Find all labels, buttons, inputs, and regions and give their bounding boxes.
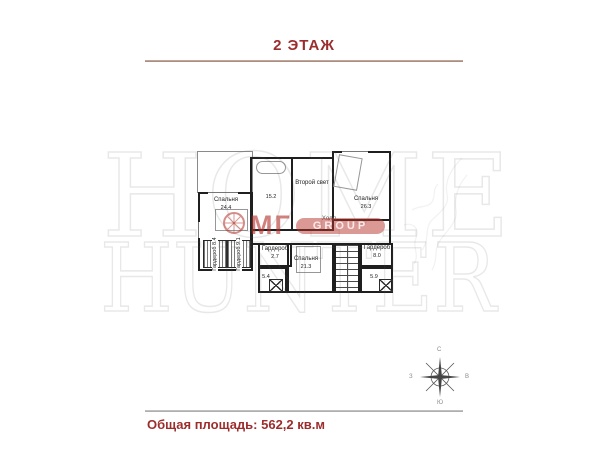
room-area: 5.9 xyxy=(370,274,378,281)
room-label-bathroom: 15.2 xyxy=(266,194,277,201)
room-area: 9.1 xyxy=(236,237,242,245)
room-label-bedroom-right: Спальня 26.3 xyxy=(354,196,378,210)
room-area: 15.2 xyxy=(266,194,277,201)
shaft-box-5-4 xyxy=(269,279,283,292)
room-name: Гардероб xyxy=(236,246,242,270)
room-label-wardrobe-center: Гардероб 2.7 xyxy=(262,246,288,260)
staircase-divider xyxy=(347,245,348,291)
room-label-5-4: 5.4 xyxy=(262,274,270,281)
room-name: Второй свет xyxy=(295,180,329,186)
room-name: Гардероб xyxy=(364,245,390,251)
room-area: 21.3 xyxy=(294,264,318,271)
watermark-horse-sketch xyxy=(392,150,477,280)
bed-bedroom-left xyxy=(215,209,248,231)
compass-rose: С Ю З В xyxy=(418,355,462,399)
room-name: Спальня xyxy=(354,196,378,202)
page-title: 2 ЭТАЖ xyxy=(145,37,463,54)
bathtub xyxy=(256,161,286,174)
compass-label-north: С xyxy=(437,347,441,353)
room-area: 24.4 xyxy=(214,205,238,212)
room-label-second-light: Второй свет xyxy=(295,180,329,188)
total-area-text: Общая площадь: 562,2 кв.м xyxy=(147,417,325,432)
bottom-separator-line xyxy=(145,410,463,412)
room-name: Холл xyxy=(322,216,336,222)
hall-wall-right xyxy=(332,221,391,245)
room-name: Гардероб xyxy=(212,246,218,270)
room-label-5-9: 5.9 xyxy=(370,274,378,281)
room-area: 26.3 xyxy=(354,204,378,211)
room-area: 8.4 xyxy=(212,237,218,245)
room-name: Гардероб xyxy=(262,246,288,252)
room-label-wardrobe-left-2: Гардероб 9.1 xyxy=(236,236,242,271)
compass-label-west: З xyxy=(409,374,413,380)
compass-label-south: Ю xyxy=(437,400,443,406)
terrace-outline xyxy=(197,151,253,193)
shaft-box-5-9 xyxy=(379,279,393,292)
staircase xyxy=(334,243,360,293)
floor-plan-page: 2 ЭТАЖ Спальня 24 xyxy=(0,0,607,455)
room-label-wardrobe-left-1: Гардероб 8.4 xyxy=(212,236,218,271)
top-separator-line xyxy=(145,60,463,62)
room-label-wardrobe-right: Гардероб 8.0 xyxy=(364,245,390,259)
room-area: 5.4 xyxy=(262,274,270,281)
room-name: Спальня xyxy=(294,256,318,262)
room-label-hall: Холл xyxy=(322,216,336,224)
window-bedroom-right-top xyxy=(342,149,368,153)
compass-rose-icon xyxy=(418,355,462,399)
room-name: Спальня xyxy=(214,197,238,203)
window-bedroom-left-top xyxy=(208,190,238,194)
room-label-bedroom-center: Спальня 21.3 xyxy=(294,256,318,270)
window-bedroom-left-side xyxy=(196,222,200,238)
compass-label-east: В xyxy=(465,374,469,380)
room-label-bedroom-left: Спальня 24.4 xyxy=(214,197,238,211)
room-area: 8.0 xyxy=(364,253,390,260)
room-area: 2.7 xyxy=(262,254,288,261)
